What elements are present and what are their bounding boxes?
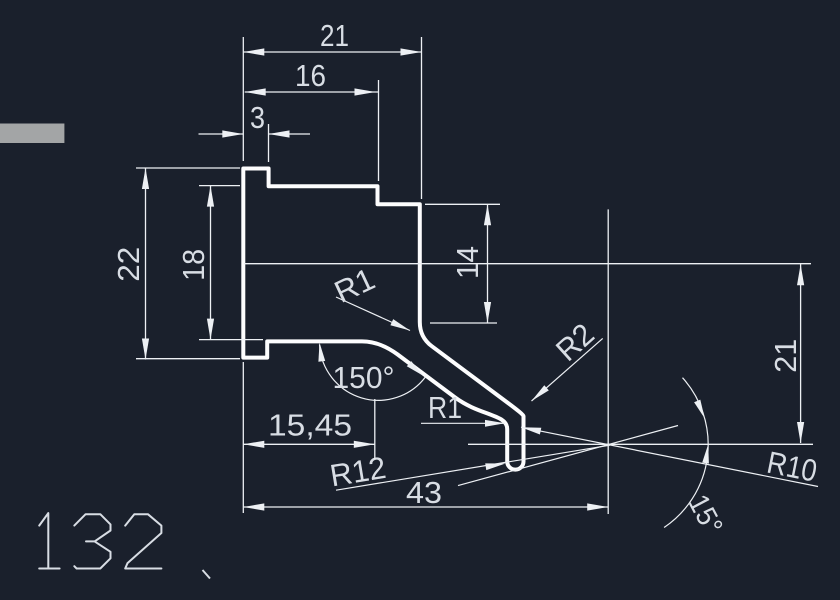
svg-text:R1: R1 xyxy=(428,390,462,425)
svg-text:150°: 150° xyxy=(333,360,395,395)
svg-text:16: 16 xyxy=(295,58,326,93)
svg-text:15,45: 15,45 xyxy=(268,408,352,443)
svg-text:3: 3 xyxy=(250,100,265,135)
svg-text:43: 43 xyxy=(406,475,442,510)
svg-text:21: 21 xyxy=(320,18,349,53)
svg-text:18: 18 xyxy=(176,249,211,281)
svg-text:22: 22 xyxy=(111,247,146,282)
svg-text:21: 21 xyxy=(768,339,803,373)
svg-text:14: 14 xyxy=(450,246,485,279)
